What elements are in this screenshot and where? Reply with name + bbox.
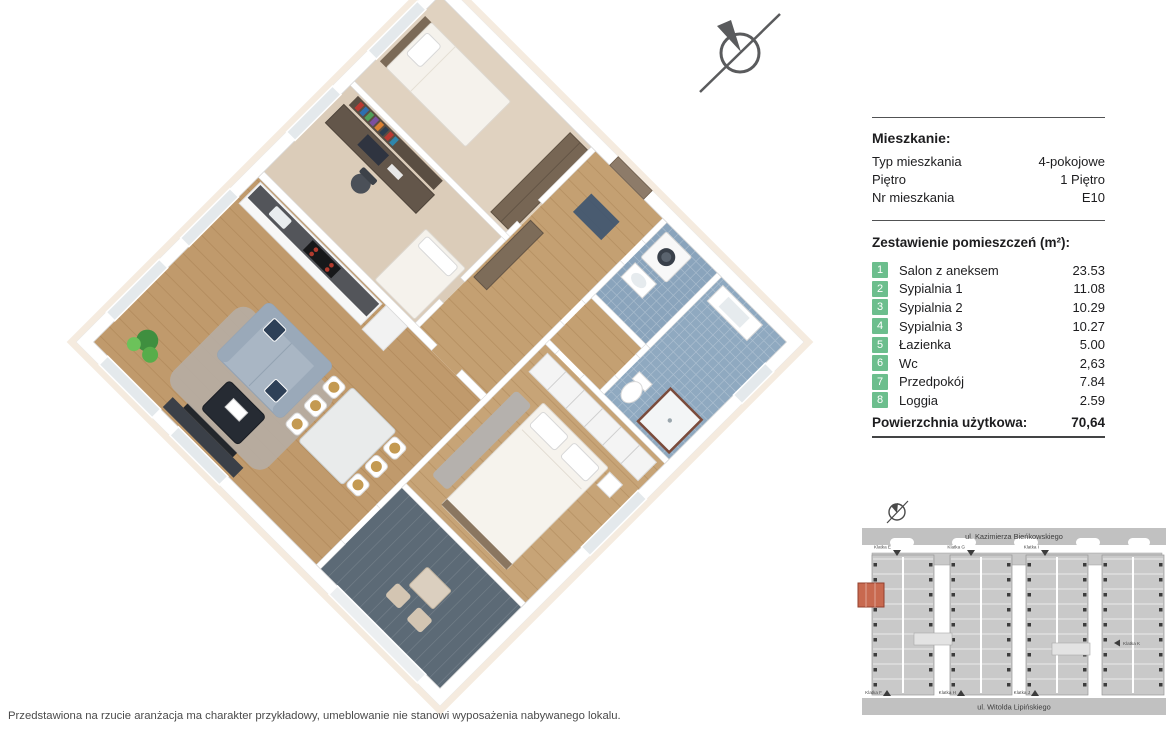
room-name: Wc <box>899 356 1080 371</box>
room-area: 11.08 <box>1073 281 1105 296</box>
info-label: Nr mieszkania <box>872 189 954 207</box>
info-row-number: Nr mieszkania E10 <box>872 189 1105 207</box>
building-wings <box>872 555 1164 695</box>
site-map-compass-icon <box>887 501 908 523</box>
compass-icon <box>700 14 780 92</box>
room-number-badge: 4 <box>872 318 888 334</box>
divider <box>872 117 1105 118</box>
divider <box>872 220 1105 221</box>
room-area: 2,63 <box>1080 356 1105 371</box>
room-area: 10.27 <box>1072 319 1105 334</box>
klatka-label: Klatka H <box>939 690 956 695</box>
info-row-floor: Piętro 1 Piętro <box>872 171 1105 189</box>
floor-plan-3d <box>0 0 860 746</box>
room-row: 3 Sypialnia 2 10.29 <box>872 298 1105 317</box>
highlighted-unit <box>858 583 884 607</box>
divider <box>872 436 1105 438</box>
courtyard-structure <box>1052 643 1090 655</box>
info-label: Typ mieszkania <box>872 153 962 171</box>
room-row: 5 Łazienka 5.00 <box>872 335 1105 354</box>
floor-plan-svg <box>0 0 860 746</box>
klatka-label: Klatka G <box>947 545 965 550</box>
room-list: 1 Salon z aneksem 23.53 2 Sypialnia 1 11… <box>872 261 1105 410</box>
room-name: Sypialnia 1 <box>899 281 1073 296</box>
room-name: Loggia <box>899 393 1080 408</box>
room-number-badge: 5 <box>872 337 888 353</box>
room-number-badge: 6 <box>872 355 888 371</box>
total-area-row: Powierzchnia użytkowa: 70,64 <box>872 415 1105 430</box>
info-value: 1 Piętro <box>1060 171 1105 189</box>
total-value: 70,64 <box>1071 415 1105 430</box>
room-number-badge: 3 <box>872 299 888 315</box>
room-name: Sypialnia 2 <box>899 300 1072 315</box>
room-area: 23.53 <box>1072 263 1105 278</box>
klatka-label: Klatka F <box>865 690 882 695</box>
klatka-label: Klatka I <box>1024 545 1039 550</box>
apartment-info-panel: Mieszkanie: Typ mieszkania 4-pokojowe Pi… <box>872 0 1105 438</box>
apartment-info-title: Mieszkanie: <box>872 130 1105 146</box>
room-number-badge: 1 <box>872 262 888 278</box>
info-value: 4-pokojowe <box>1039 153 1106 171</box>
room-number-badge: 7 <box>872 374 888 390</box>
room-area: 2.59 <box>1080 393 1105 408</box>
klatka-label: Klatka J <box>1014 690 1030 695</box>
info-value: E10 <box>1082 189 1105 207</box>
info-row-type: Typ mieszkania 4-pokojowe <box>872 153 1105 171</box>
room-area: 10.29 <box>1072 300 1105 315</box>
courtyard-structure <box>914 633 952 645</box>
site-map: ul. Kazimierza Bieńkowskiego ul. Witolda… <box>856 497 1172 743</box>
street-name-bottom: ul. Witolda Lipińskiego <box>977 703 1051 712</box>
room-row: 8 Loggia 2.59 <box>872 391 1105 410</box>
room-number-badge: 2 <box>872 281 888 297</box>
info-label: Piętro <box>872 171 906 189</box>
apartment-card-page: { "apartment_info": { "title": "Mieszkan… <box>0 0 1172 746</box>
total-label: Powierzchnia użytkowa: <box>872 415 1027 430</box>
room-row: 6 Wc 2,63 <box>872 354 1105 373</box>
room-number-badge: 8 <box>872 392 888 408</box>
room-row: 7 Przedpokój 7.84 <box>872 373 1105 392</box>
room-summary-title: Zestawienie pomieszczeń (m²): <box>872 235 1105 250</box>
street-name-top: ul. Kazimierza Bieńkowskiego <box>965 532 1063 541</box>
room-row: 4 Sypialnia 3 10.27 <box>872 317 1105 336</box>
room-row: 2 Sypialnia 1 11.08 <box>872 280 1105 299</box>
klatka-label: Klatka E <box>874 545 891 550</box>
room-area: 5.00 <box>1080 337 1105 352</box>
room-name: Przedpokój <box>899 374 1080 389</box>
room-row: 1 Salon z aneksem 23.53 <box>872 261 1105 280</box>
room-area: 7.84 <box>1080 374 1105 389</box>
room-name: Łazienka <box>899 337 1080 352</box>
klatka-label: Klatka K <box>1123 641 1141 646</box>
room-name: Salon z aneksem <box>899 263 1072 278</box>
disclaimer-text: Przedstawiona na rzucie aranżacja ma cha… <box>8 710 621 722</box>
room-name: Sypialnia 3 <box>899 319 1072 334</box>
